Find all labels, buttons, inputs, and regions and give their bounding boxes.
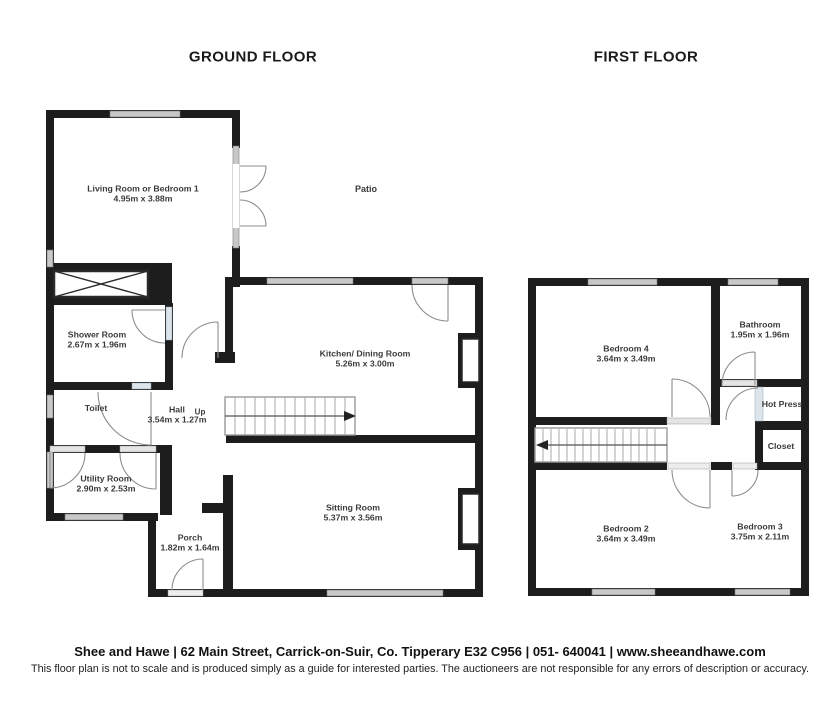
- room-label-bedroom-2: Bedroom 2 3.64m x 3.49m: [597, 524, 656, 545]
- room-label-porch: Porch 1.82m x 1.64m: [161, 533, 220, 554]
- agency-contact-line: Shee and Hawe | 62 Main Street, Carrick-…: [0, 644, 840, 659]
- ground-floor-door-openings: [50, 164, 239, 596]
- room-label-kitchen: Kitchen/ Dining Room 5.26m x 3.00m: [320, 349, 411, 370]
- kitchen-back-door: [412, 285, 448, 321]
- stairs-up-label: Up: [195, 408, 206, 417]
- hall-kitchen-door: [182, 322, 218, 358]
- room-label-bedroom-3: Bedroom 3 3.75m x 2.11m: [731, 522, 789, 543]
- room-label-bedroom-4: Bedroom 4 3.64m x 3.49m: [597, 344, 656, 365]
- room-label-living-room: Living Room or Bedroom 1 4.95m x 3.88m: [87, 184, 199, 205]
- bedroom-2-door: [672, 470, 710, 508]
- ground-floor-doors: [50, 166, 448, 590]
- floor-plan-drawing: [0, 0, 840, 704]
- room-label-sitting-room: Sitting Room 5.37m x 3.56m: [324, 503, 383, 524]
- patio-french-door-upper: [240, 166, 266, 192]
- toilet-door: [98, 392, 151, 445]
- sitting-room-bay-window: [458, 488, 483, 550]
- porch-front-door: [172, 559, 203, 590]
- ground-floor-title: GROUND FLOOR: [189, 49, 317, 66]
- room-label-utility-room: Utility Room 2.90m x 2.53m: [77, 474, 136, 495]
- first-floor-stairs: [535, 428, 667, 462]
- room-label-bathroom: Bathroom 1.95m x 1.96m: [731, 320, 790, 341]
- shower-room-door: [132, 310, 165, 343]
- ground-floor-stairs: [225, 397, 356, 435]
- patio-french-door-lower: [240, 200, 266, 226]
- hot-press-door: [726, 388, 758, 420]
- bedroom-3-door: [732, 470, 758, 496]
- room-label-shower-room: Shower Room 2.67m x 1.96m: [68, 330, 127, 351]
- bedroom-4-door: [672, 379, 710, 417]
- patio-label: Patio: [355, 184, 377, 194]
- room-label-toilet: Toilet: [85, 403, 108, 413]
- room-label-hot-press: Hot Press: [761, 399, 803, 409]
- crossed-void-box: [54, 271, 148, 297]
- floor-plan-page: GROUND FLOOR FIRST FLOOR Living Room or …: [0, 0, 840, 704]
- first-floor-title: FIRST FLOOR: [594, 49, 698, 66]
- kitchen-bay-window: [458, 333, 483, 388]
- disclaimer-line: This floor plan is not to scale and is p…: [0, 663, 840, 675]
- room-label-closet: Closet: [768, 441, 795, 451]
